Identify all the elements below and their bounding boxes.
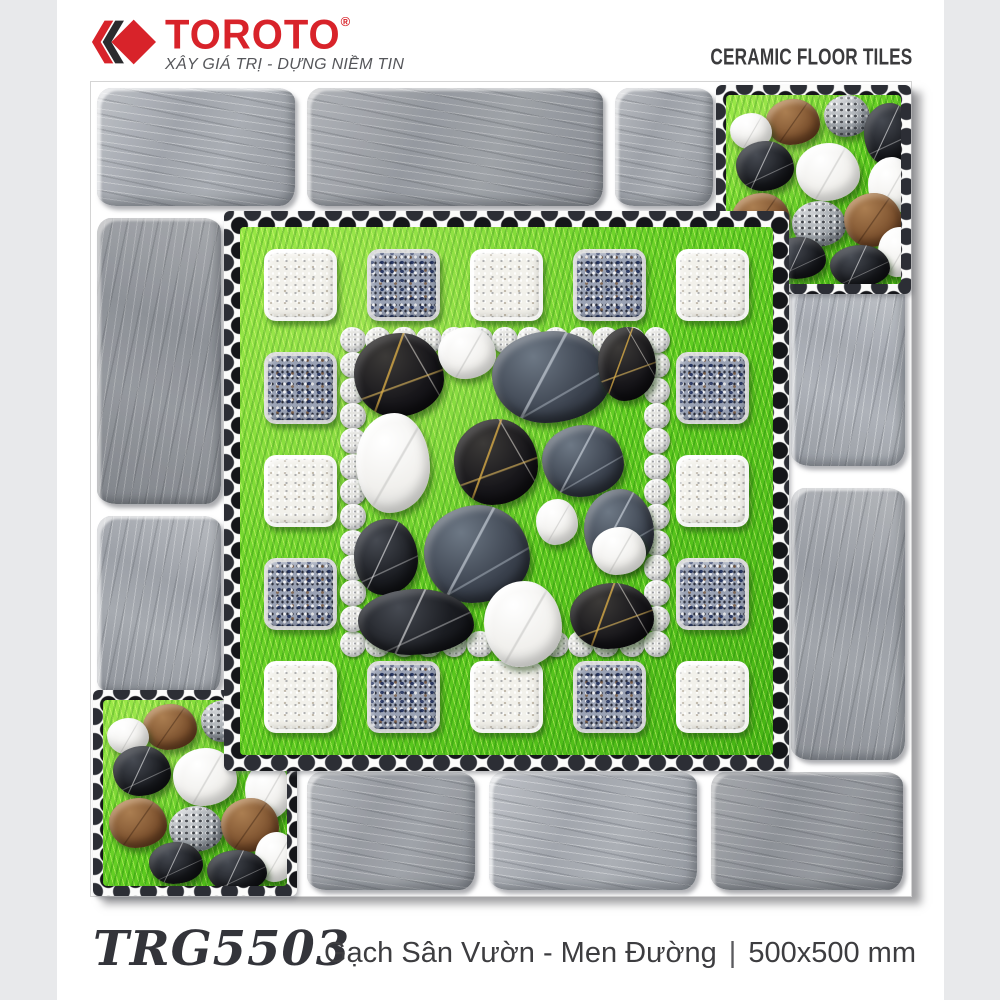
- slate-brick: [791, 284, 905, 466]
- header: TOROTO® XÂY GIÁ TRỊ - DỰNG NIỀM TIN CERA…: [57, 0, 944, 80]
- pebble-stone-sl: [542, 425, 624, 497]
- chain-pebble: [644, 403, 670, 429]
- page-gutter-right: [944, 0, 1000, 1000]
- pebble-stone-wh: [536, 499, 578, 545]
- chain-pebble: [340, 504, 366, 530]
- pebble-stone-bk: [149, 842, 203, 884]
- tile-product-photo: [90, 81, 912, 897]
- slate-brick: [307, 88, 603, 206]
- pebble-stone-wh: [796, 143, 860, 201]
- pebble-stone-bg: [454, 419, 538, 505]
- pebble-stone-bk: [354, 519, 418, 595]
- pebble-stone-bg: [598, 327, 656, 401]
- product-description: Gạch Sân Vườn - Men Đường|500x500 mm: [324, 937, 916, 970]
- slate-brick: [791, 488, 905, 760]
- pebble-stone-bk: [358, 589, 474, 655]
- slate-brick: [97, 516, 221, 694]
- pebble-stone-wh: [592, 527, 646, 575]
- chain-pebble: [644, 428, 670, 454]
- product-size: 500x500 mm: [748, 937, 916, 969]
- granite-block: [676, 558, 749, 630]
- registered-mark: ®: [341, 14, 351, 29]
- pebble-stone-br: [143, 704, 197, 750]
- chain-pebble: [644, 631, 670, 657]
- pebble-stone-br: [109, 798, 167, 848]
- pebble-stone-wh: [356, 413, 430, 513]
- pebble-stone-bk: [207, 850, 267, 886]
- chain-pebble: [644, 454, 670, 480]
- footer: TRG5503 Gạch Sân Vườn - Men Đường|500x50…: [57, 897, 944, 1000]
- product-code: TRG5503: [93, 921, 350, 977]
- toroto-diamond-icon: [90, 19, 156, 65]
- terrazzo-block: [264, 249, 337, 321]
- pebble-stone-bk: [736, 141, 794, 191]
- terrazzo-block: [264, 455, 337, 527]
- slate-brick: [489, 772, 697, 890]
- pebble-stone-bk: [864, 103, 901, 165]
- terrazzo-block: [264, 661, 337, 733]
- pebble-stone-sl: [492, 331, 610, 423]
- terrazzo-block: [676, 661, 749, 733]
- catalog-page: { "header": { "brand": "TOROTO", "regist…: [0, 0, 1000, 1000]
- pebble-stone-bk: [830, 245, 890, 284]
- slate-brick: [97, 218, 221, 504]
- terrazzo-block: [676, 249, 749, 321]
- chain-pebble: [644, 555, 670, 581]
- terrazzo-block: [676, 455, 749, 527]
- brand-name: TOROTO: [165, 15, 341, 55]
- garden-grass: [240, 227, 773, 755]
- chain-pebble: [644, 479, 670, 505]
- brand-logo: TOROTO® XÂY GIÁ TRỊ - DỰNG NIỀM TIN: [90, 16, 404, 74]
- granite-block: [264, 558, 337, 630]
- granite-block: [367, 249, 440, 321]
- pebble-border: [224, 211, 789, 771]
- slate-brick: [97, 88, 295, 206]
- separator: |: [729, 937, 737, 969]
- slate-brick: [711, 772, 903, 890]
- slate-brick: [307, 772, 475, 890]
- chain-pebble: [340, 403, 366, 429]
- pebble-stone-wh: [484, 581, 562, 667]
- pebble-stone-wh: [438, 327, 496, 379]
- pebble-stone-bg: [354, 333, 444, 417]
- granite-block: [573, 249, 646, 321]
- pebble-stone-br: [766, 99, 820, 145]
- brand-tagline: XÂY GIÁ TRỊ - DỰNG NIỀM TIN: [165, 56, 404, 74]
- product-type-label: CERAMIC FLOOR TILES: [710, 45, 912, 72]
- granite-block: [367, 661, 440, 733]
- page-gutter-left: [0, 0, 57, 1000]
- terrazzo-block: [470, 249, 543, 321]
- pebble-stone-bg: [570, 583, 654, 649]
- pebble-stone-bk: [113, 746, 171, 796]
- slate-brick: [615, 88, 713, 206]
- product-category: Gạch Sân Vườn - Men Đường: [324, 937, 717, 969]
- terrazzo-block: [470, 661, 543, 733]
- granite-block: [264, 352, 337, 424]
- granite-block: [573, 661, 646, 733]
- granite-block: [676, 352, 749, 424]
